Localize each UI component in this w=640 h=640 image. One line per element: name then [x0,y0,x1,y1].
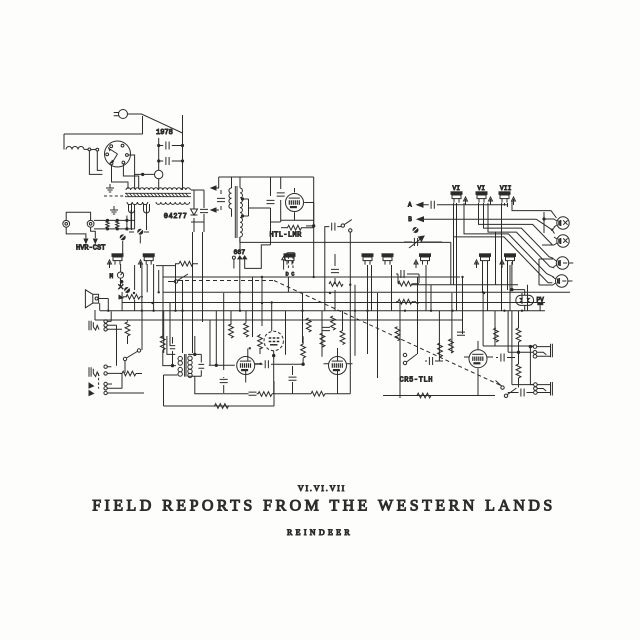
svg-text:CR5-TLH: CR5-TLH [400,377,434,385]
svg-text:04277: 04277 [164,213,188,221]
svg-text:VI: VI [453,185,461,192]
svg-text:VII: VII [500,185,512,192]
svg-text:C: C [291,271,294,277]
svg-text:PV: PV [537,297,545,304]
svg-text:HTL-LMR: HTL-LMR [270,232,303,240]
svg-text:667: 667 [234,249,246,256]
svg-text:REINDEER: REINDEER [287,528,353,537]
svg-text:VI.VI.VII: VI.VI.VII [298,484,346,493]
svg-text:FIELD REPORTS FROM THE WESTERN: FIELD REPORTS FROM THE WESTERN LANDS [92,498,556,515]
svg-text:D: D [286,271,289,277]
svg-text:VI: VI [478,185,486,192]
svg-text:A: A [408,202,412,209]
svg-text:HVR-CST: HVR-CST [76,245,105,253]
svg-text:M: M [110,273,114,280]
svg-text:B: B [408,216,412,223]
svg-text:1978: 1978 [156,129,173,137]
